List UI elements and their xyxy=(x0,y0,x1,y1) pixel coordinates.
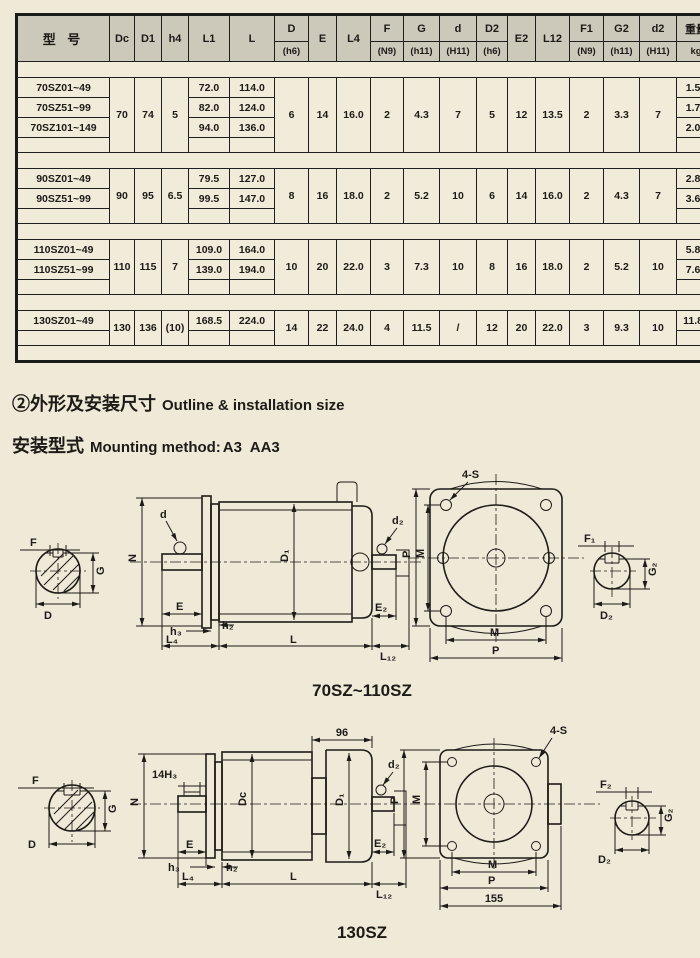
shaft-key-section-view: F G D xyxy=(18,775,119,851)
table-cell: 10 xyxy=(640,240,677,295)
dim-label-L4: L₄ xyxy=(166,634,178,646)
table-cell: 82.0 xyxy=(189,98,230,118)
dim-label-D1: D₁ xyxy=(334,793,346,806)
bolt-count-label: 4-S xyxy=(550,725,567,737)
section-heading-mounting: 安装型式Mounting method:A3 AA3 xyxy=(12,432,280,458)
col-header-F1: F1(N9) xyxy=(570,15,604,62)
table-cell: 7 xyxy=(640,78,677,153)
separator-row xyxy=(17,153,700,169)
table-cell: 7 xyxy=(440,78,477,153)
dim-label-P-vertical: P xyxy=(401,551,413,558)
dim-label-G: G xyxy=(107,804,119,813)
table-cell: 168.5 xyxy=(189,311,230,331)
table-row: 90SZ01~49 90 95 6.5 79.5 127.0 8 16 18.0… xyxy=(17,169,700,189)
col-header-d2: d2(H11) xyxy=(640,15,677,62)
table-cell: 7 xyxy=(162,240,189,295)
dim-label-Dc: Dc xyxy=(237,792,249,806)
table-cell: 22.0 xyxy=(337,240,371,295)
dim-label-L4: L₄ xyxy=(182,871,194,883)
dim-label-L12: L₁₂ xyxy=(376,889,392,901)
table-cell: 8 xyxy=(477,240,508,295)
col-header-L4: L4 xyxy=(337,15,371,62)
col-header-L1: L1 xyxy=(189,15,230,62)
col-header-d: d(H11) xyxy=(440,15,477,62)
dim-label-F1: F₁ xyxy=(584,533,596,545)
dim-label-F: F xyxy=(30,537,37,549)
table-cell: 1.70 xyxy=(677,98,700,118)
table-cell: 2 xyxy=(570,240,604,295)
col-header-weight: 重量kg xyxy=(677,15,700,62)
table-cell: 16.0 xyxy=(536,169,570,224)
heading-mounting-zh: 安装型式 xyxy=(12,436,84,456)
table-cell: 2.00 xyxy=(677,118,700,138)
table-cell: 74 xyxy=(135,78,162,153)
motor-side-view: N d D₁ d₂ E h₃ h₂ L₄ L E₂ L₁₂ xyxy=(127,482,424,663)
model-cell: 110SZ01~49 xyxy=(17,240,110,260)
table-cell: 14 xyxy=(508,169,536,224)
dim-label-N: N xyxy=(129,798,141,806)
table-cell: 14 xyxy=(275,311,309,346)
table-cell: 136 xyxy=(135,311,162,346)
table-cell: 4.3 xyxy=(604,169,640,224)
table-cell: 12 xyxy=(508,78,536,153)
flange-front-view: 4-S P M M P 155 xyxy=(389,725,600,910)
drawing1-caption: 70SZ~110SZ xyxy=(312,681,412,700)
table-cell: 3.3 xyxy=(604,78,640,153)
table-cell: 5.2 xyxy=(604,240,640,295)
table-cell: 6 xyxy=(477,169,508,224)
table-cell: 70 xyxy=(110,78,135,153)
separator-row xyxy=(17,346,700,362)
col-header-G: G(h11) xyxy=(404,15,440,62)
dim-label-N: N xyxy=(127,554,139,562)
dim-label-M-vertical: M xyxy=(415,549,427,558)
table-cell: 5.2 xyxy=(404,169,440,224)
dim-label-D2: D₂ xyxy=(598,854,611,866)
table-cell: 99.5 xyxy=(189,189,230,209)
dim-label-G2: G₂ xyxy=(647,562,659,576)
model-cell: 70SZ51~99 xyxy=(17,98,110,118)
col-header-D1: D1 xyxy=(135,15,162,62)
table-cell: 194.0 xyxy=(230,260,275,280)
table-cell: 6 xyxy=(275,78,309,153)
table-cell: 147.0 xyxy=(230,189,275,209)
dim-label-G: G xyxy=(95,566,107,575)
model-cell: 110SZ51~99 xyxy=(17,260,110,280)
dim-label-L: L xyxy=(290,871,297,883)
table-cell: 6.5 xyxy=(162,169,189,224)
col-header-E2: E2 xyxy=(508,15,536,62)
rear-shaft-section-view: F₂ G₂ D₂ xyxy=(596,779,675,866)
dim-label-96: 96 xyxy=(336,727,348,739)
dim-label-L12: L₁₂ xyxy=(380,651,396,663)
table-block-70sz: 70SZ01~49 70 74 5 72.0 114.0 6 14 16.0 2… xyxy=(17,78,700,153)
table-cell: 4.3 xyxy=(404,78,440,153)
table-cell: 2 xyxy=(371,169,404,224)
bolt-count-label: 4-S xyxy=(462,469,479,481)
table-cell: 16 xyxy=(508,240,536,295)
table-cell: 22.0 xyxy=(536,311,570,346)
model-cell: 70SZ101~149 xyxy=(17,118,110,138)
table-cell: 11.5 xyxy=(404,311,440,346)
dim-label-F: F xyxy=(32,775,39,787)
table-row: 70SZ01~49 70 74 5 72.0 114.0 6 14 16.0 2… xyxy=(17,78,700,98)
table-cell: 16 xyxy=(309,169,337,224)
table-cell: 7.60 xyxy=(677,260,700,280)
table-cell: 16.0 xyxy=(337,78,371,153)
table-cell: 5 xyxy=(477,78,508,153)
table-cell: 127.0 xyxy=(230,169,275,189)
table-cell: 3.60 xyxy=(677,189,700,209)
table-cell: 1.50 xyxy=(677,78,700,98)
col-header-G2: G2(h11) xyxy=(604,15,640,62)
table-cell: 139.0 xyxy=(189,260,230,280)
dim-label-D: D xyxy=(44,610,52,622)
table-cell: 3 xyxy=(371,240,404,295)
col-header-h4: h4 xyxy=(162,15,189,62)
table-cell: 130 xyxy=(110,311,135,346)
table-cell: 90 xyxy=(110,169,135,224)
table-block-90sz: 90SZ01~49 90 95 6.5 79.5 127.0 8 16 18.0… xyxy=(17,169,700,224)
table-cell: 164.0 xyxy=(230,240,275,260)
heading-outline-en: Outline & installation size xyxy=(162,397,345,414)
table-row: 110SZ01~49 110 115 7 109.0 164.0 10 20 2… xyxy=(17,240,700,260)
dim-label-E: E xyxy=(186,839,193,851)
dim-label-h2: h₂ xyxy=(222,620,234,632)
heading-outline-zh: ②外形及安装尺寸 xyxy=(12,394,156,414)
dim-label-E2: E₂ xyxy=(375,602,387,614)
table-cell: 79.5 xyxy=(189,169,230,189)
dim-label-G2: G₂ xyxy=(663,808,675,822)
table-cell: 2.80 xyxy=(677,169,700,189)
table-cell: 9.3 xyxy=(604,311,640,346)
table-cell: 5.80 xyxy=(677,240,700,260)
heading-mounting-en: Mounting method: xyxy=(90,439,221,456)
model-cell: 90SZ51~99 xyxy=(17,189,110,209)
dim-label-P-vertical: P xyxy=(389,797,401,804)
dim-label-155: 155 xyxy=(485,893,503,905)
table-cell: 12 xyxy=(477,311,508,346)
table-cell: 18.0 xyxy=(337,169,371,224)
table-cell: 224.0 xyxy=(230,311,275,331)
table-block-110sz: 110SZ01~49 110 115 7 109.0 164.0 10 20 2… xyxy=(17,240,700,295)
dim-label-M-horizontal: M xyxy=(488,859,497,871)
table-cell: (10) xyxy=(162,311,189,346)
table-cell: 24.0 xyxy=(337,311,371,346)
col-header-D: D(h6) xyxy=(275,15,309,62)
table-cell: 20 xyxy=(309,240,337,295)
col-header-Dc: Dc xyxy=(110,15,135,62)
table-cell: 13.5 xyxy=(536,78,570,153)
table-cell: 4 xyxy=(371,311,404,346)
flange-front-view: 4-S P M M P xyxy=(401,469,584,662)
dim-label-D1: D₁ xyxy=(279,549,291,562)
table-cell: 72.0 xyxy=(189,78,230,98)
table-cell: 95 xyxy=(135,169,162,224)
table-cell: / xyxy=(440,311,477,346)
dim-label-h3: h₃ xyxy=(168,862,180,874)
dim-label-P-horizontal: P xyxy=(488,875,495,887)
dim-label-d2: d₂ xyxy=(392,515,404,527)
spec-table: 型 号 Dc D1 h4 L1 L D(h6) E L4 F(N9) G(h11… xyxy=(15,13,700,363)
table-cell: 10 xyxy=(275,240,309,295)
model-cell: 130SZ01~49 xyxy=(17,311,110,331)
separator-row xyxy=(17,62,700,78)
table-row: 130SZ01~49 130 136 (10) 168.5 224.0 14 2… xyxy=(17,311,700,331)
dim-label-M-vertical: M xyxy=(411,795,423,804)
mounting-method-values: A3 AA3 xyxy=(223,439,280,456)
dim-label-L: L xyxy=(290,634,297,646)
table-cell: 8 xyxy=(275,169,309,224)
dim-label-E2: E₂ xyxy=(374,838,386,850)
table-cell: 2 xyxy=(371,78,404,153)
section-heading-outline: ②外形及安装尺寸Outline & installation size xyxy=(12,390,345,416)
model-cell: 70SZ01~49 xyxy=(17,78,110,98)
shaft-key-section-view: F G D xyxy=(20,537,107,622)
table-cell: 10 xyxy=(440,169,477,224)
dim-label-F2: F₂ xyxy=(600,779,612,791)
table-cell: 124.0 xyxy=(230,98,275,118)
table-cell: 10 xyxy=(440,240,477,295)
drawing2-caption: 130SZ xyxy=(337,923,387,942)
table-cell: 7.3 xyxy=(404,240,440,295)
motor-side-view: N 14H₃ Dc D₁ 96 d₂ E h₃ h₂ L₄ L xyxy=(129,727,420,901)
table-cell: 20 xyxy=(508,311,536,346)
table-cell: 2 xyxy=(570,169,604,224)
table-cell: 115 xyxy=(135,240,162,295)
table-cell: 10 xyxy=(640,311,677,346)
table-cell: 114.0 xyxy=(230,78,275,98)
separator-row xyxy=(17,224,700,240)
dim-label-D2: D₂ xyxy=(600,610,613,622)
dim-label-14H3: 14H₃ xyxy=(152,769,177,781)
table-cell: 109.0 xyxy=(189,240,230,260)
separator-row xyxy=(17,295,700,311)
dim-label-P-horizontal: P xyxy=(492,645,499,657)
col-header-model: 型 号 xyxy=(17,15,110,62)
model-cell: 90SZ01~49 xyxy=(17,169,110,189)
dim-label-d2: d₂ xyxy=(388,759,400,771)
outline-drawing-70sz-110sz: F G D N d D₁ d₂ E h₃ h₂ xyxy=(0,462,700,708)
dim-label-M-horizontal: M xyxy=(490,627,499,639)
col-header-F: F(N9) xyxy=(371,15,404,62)
outline-drawing-130sz: F G D N 14H₃ Dc D₁ 96 d₂ xyxy=(0,712,700,954)
dim-label-D: D xyxy=(28,839,36,851)
dim-label-h2: h₂ xyxy=(226,862,238,874)
table-header-row: 型 号 Dc D1 h4 L1 L D(h6) E L4 F(N9) G(h11… xyxy=(17,15,700,62)
rear-shaft-section-view: F₁ G₂ D₂ xyxy=(578,533,659,622)
table-block-130sz: 130SZ01~49 130 136 (10) 168.5 224.0 14 2… xyxy=(17,311,700,346)
col-header-L12: L12 xyxy=(536,15,570,62)
table-cell: 94.0 xyxy=(189,118,230,138)
table-cell: 5 xyxy=(162,78,189,153)
table-cell: 22 xyxy=(309,311,337,346)
col-header-D2: D2(h6) xyxy=(477,15,508,62)
dim-label-d: d xyxy=(160,509,167,521)
col-header-L: L xyxy=(230,15,275,62)
col-header-E: E xyxy=(309,15,337,62)
table-cell: 3 xyxy=(570,311,604,346)
table-cell: 7 xyxy=(640,169,677,224)
table-cell: 14 xyxy=(309,78,337,153)
table-cell: 110 xyxy=(110,240,135,295)
table-cell: 136.0 xyxy=(230,118,275,138)
table-cell: 11.80 xyxy=(677,311,700,331)
table-cell: 2 xyxy=(570,78,604,153)
dim-label-E: E xyxy=(176,601,183,613)
catalog-page: { "page": {"bg_color": "#efe9d8", "ink_c… xyxy=(0,0,700,958)
table-cell: 18.0 xyxy=(536,240,570,295)
